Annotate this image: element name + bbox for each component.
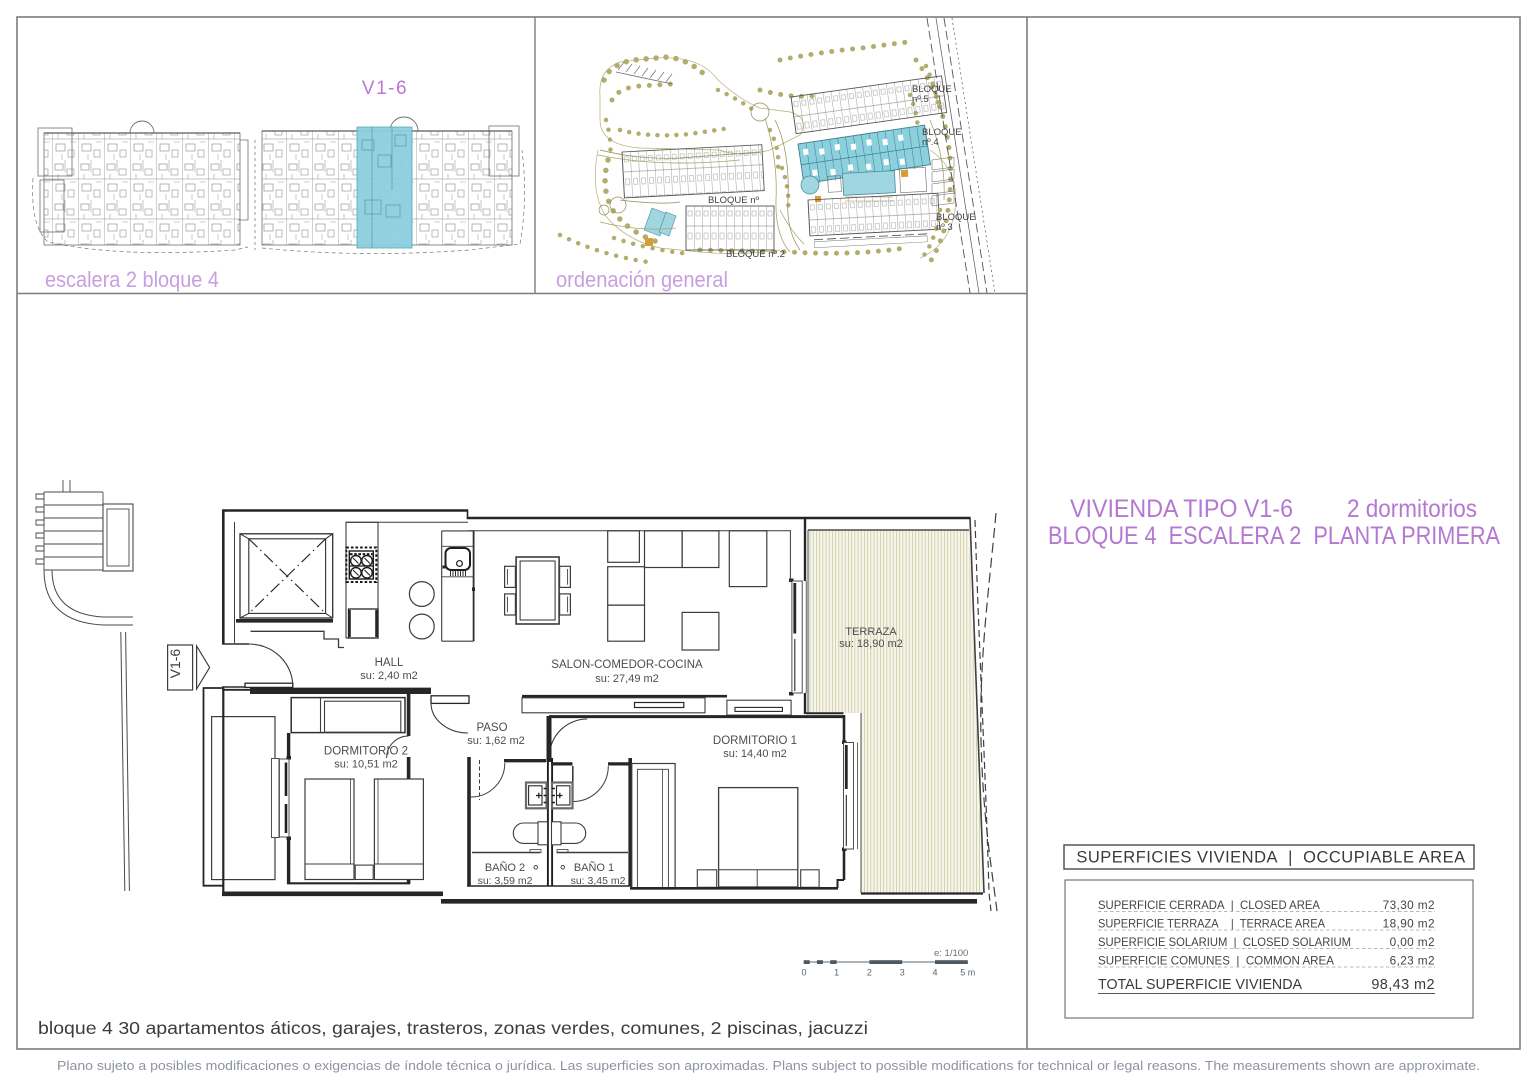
svg-text:HALL: HALL bbox=[375, 657, 404, 669]
svg-text:su: 27,49 m2: su: 27,49 m2 bbox=[595, 673, 659, 685]
svg-text:nº.5: nº.5 bbox=[912, 94, 929, 105]
svg-text:su: 1,62 m2: su: 1,62 m2 bbox=[467, 735, 524, 747]
svg-text:1: 1 bbox=[834, 968, 839, 978]
svg-text:SUPERFICIES VIVIENDA | OCCUP: SUPERFICIES VIVIENDA | OCCUPIABLE AREA bbox=[1076, 849, 1465, 867]
svg-text:DORMITORIO 1: DORMITORIO 1 bbox=[713, 735, 797, 747]
svg-text:BAÑO 2: BAÑO 2 bbox=[485, 861, 525, 874]
svg-text:3: 3 bbox=[900, 968, 905, 978]
svg-text:4: 4 bbox=[932, 968, 937, 978]
svg-text:SUPERFICIE COMUNES | COMMON: SUPERFICIE COMUNES | COMMON AREA bbox=[1098, 954, 1334, 968]
svg-text:TERRAZA: TERRAZA bbox=[845, 626, 897, 638]
svg-text:BLOQUE nº.2: BLOQUE nº.2 bbox=[726, 249, 785, 260]
svg-text:0: 0 bbox=[801, 968, 806, 978]
svg-text:VIVIENDA TIPO V1-6: VIVIENDA TIPO V1-6 bbox=[1070, 495, 1293, 523]
svg-text:nº.4: nº.4 bbox=[922, 137, 939, 148]
svg-text:5 m: 5 m bbox=[960, 968, 975, 978]
svg-text:BLOQUE 4 ESCALERA 2 PLANTA P: BLOQUE 4 ESCALERA 2 PLANTA PRIMERA bbox=[1048, 522, 1500, 550]
svg-text:V1-6: V1-6 bbox=[167, 649, 183, 679]
svg-text:TOTAL SUPERFICIE VIVIENDA: TOTAL SUPERFICIE VIVIENDA bbox=[1098, 977, 1302, 993]
svg-text:18,90 m2: 18,90 m2 bbox=[1383, 917, 1435, 931]
svg-text:2 dormitorios: 2 dormitorios bbox=[1347, 495, 1477, 523]
svg-text:su: 10,51 m2: su: 10,51 m2 bbox=[334, 759, 398, 771]
svg-text:escalera 2 bloque 4: escalera 2 bloque 4 bbox=[45, 267, 219, 292]
svg-text:SUPERFICIE SOLARIUM | CLOSED: SUPERFICIE SOLARIUM | CLOSED SOLARIUM bbox=[1098, 935, 1351, 949]
svg-text:su: 18,90 m2: su: 18,90 m2 bbox=[839, 638, 903, 650]
svg-text:bloque 4 30 apartamentos ático: bloque 4 30 apartamentos áticos, garajes… bbox=[38, 1018, 868, 1038]
svg-text:nº.3: nº.3 bbox=[936, 222, 953, 233]
svg-text:73,30 m2: 73,30 m2 bbox=[1383, 898, 1435, 912]
svg-text:Plano sujeto a posibles modifi: Plano sujeto a posibles modificaciones o… bbox=[57, 1058, 1480, 1073]
svg-text:V1-6: V1-6 bbox=[362, 78, 408, 99]
svg-text:su: 14,40 m2: su: 14,40 m2 bbox=[723, 748, 787, 760]
svg-text:BLOQUE nº: BLOQUE nº bbox=[708, 195, 760, 206]
svg-text:0,00 m2: 0,00 m2 bbox=[1390, 935, 1435, 949]
svg-text:su: 2,40 m2: su: 2,40 m2 bbox=[360, 670, 417, 682]
svg-text:6,23 m2: 6,23 m2 bbox=[1390, 954, 1435, 968]
svg-text:PASO: PASO bbox=[476, 722, 507, 734]
svg-text:DORMITORIO 2: DORMITORIO 2 bbox=[324, 746, 408, 758]
svg-text:SUPERFICIE CERRADA | CLOSED: SUPERFICIE CERRADA | CLOSED AREA bbox=[1098, 898, 1320, 912]
svg-text:SUPERFICIE TERRAZA | TERRA: SUPERFICIE TERRAZA | TERRACE AREA bbox=[1098, 917, 1325, 931]
svg-text:ordenación general: ordenación general bbox=[556, 267, 728, 292]
svg-text:SALON-COMEDOR-COCINA: SALON-COMEDOR-COCINA bbox=[551, 659, 703, 671]
svg-text:BAÑO 1: BAÑO 1 bbox=[574, 861, 614, 874]
svg-text:98,43 m2: 98,43 m2 bbox=[1371, 977, 1435, 993]
svg-text:e: 1/100: e: 1/100 bbox=[934, 948, 968, 959]
svg-text:2: 2 bbox=[867, 968, 872, 978]
